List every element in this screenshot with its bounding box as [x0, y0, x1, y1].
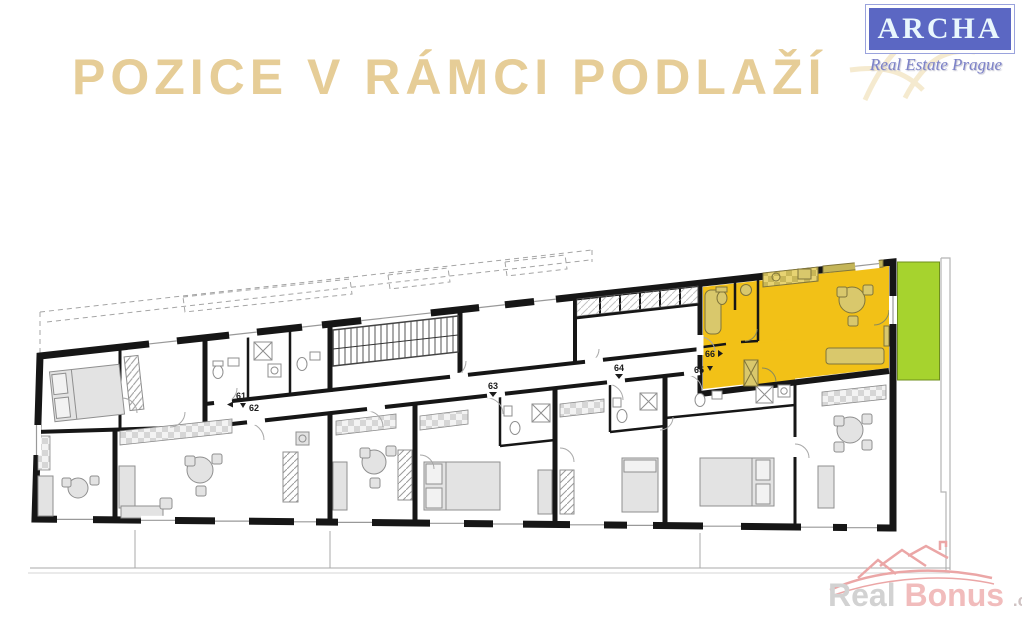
- realbonus-text-real: Real: [828, 577, 896, 613]
- archa-logo-text: ARCHA: [878, 12, 1003, 46]
- page-title: POZICE V RÁMCI PODLAŽÍ: [72, 48, 826, 106]
- unit-61-number: 61: [236, 391, 246, 401]
- unit-66-highlight: [703, 266, 889, 389]
- archa-logo: ARCHA: [866, 5, 1014, 53]
- unit-62-number: 62: [249, 403, 259, 413]
- realbonus-text: Real Bonus .cz: [828, 577, 1022, 613]
- realbonus-text-bonus: Bonus: [904, 577, 1004, 613]
- unit-64-number: 64: [614, 363, 624, 373]
- realbonus-text-cz: .cz: [1013, 591, 1022, 610]
- unit-65-number: 65: [694, 365, 704, 375]
- realbonus-watermark: Real Bonus .cz: [820, 538, 1022, 616]
- unit-66-number: 66: [705, 349, 715, 359]
- archa-logo-subtitle: Real Estate Prague: [856, 55, 1016, 75]
- unit-63-number: 63: [488, 381, 498, 391]
- screenshot-page: POZICE V RÁMCI PODLAŽÍ ARCHA Real Estate…: [0, 0, 1024, 617]
- balcony-green-area: [898, 262, 940, 380]
